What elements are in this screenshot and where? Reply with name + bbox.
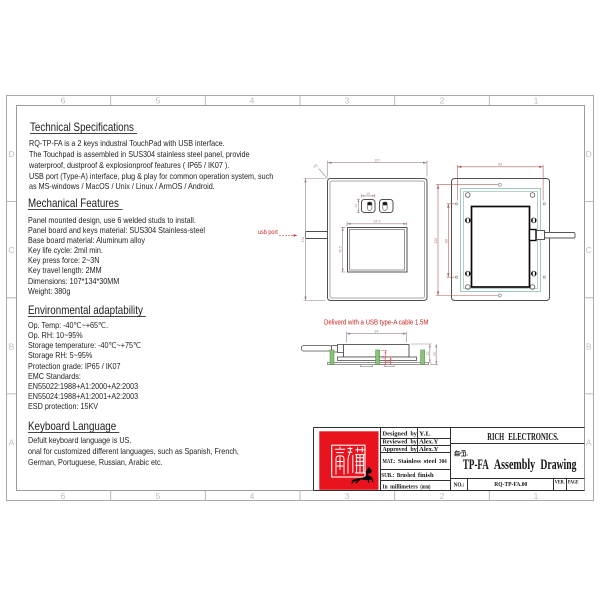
svg-text:TP-FA: TP-FA — [463, 457, 489, 473]
svg-text:Designed: Designed — [383, 432, 409, 438]
svg-text:SUB.:: SUB.: — [381, 473, 394, 479]
svg-text:RICH: RICH — [487, 432, 504, 443]
svg-text:Alex.Y: Alex.Y — [419, 447, 439, 453]
svg-text:by: by — [411, 440, 417, 446]
svg-text:millimeters: millimeters — [390, 484, 418, 490]
svg-text:64.5: 64.5 — [374, 220, 381, 224]
svg-text:(mm): (mm) — [420, 483, 430, 490]
svg-text:6: 6 — [387, 360, 391, 362]
svg-text:134: 134 — [301, 237, 305, 243]
svg-text:Y.L: Y.L — [419, 432, 431, 438]
svg-text:12: 12 — [382, 356, 386, 360]
svg-text:46.5: 46.5 — [339, 246, 343, 253]
svg-text:ELECTRONICS.: ELECTRONICS. — [508, 432, 559, 443]
svg-text:15: 15 — [366, 192, 370, 196]
svg-text:107: 107 — [374, 158, 380, 162]
svg-text:by: by — [411, 447, 417, 453]
svg-text:14: 14 — [354, 204, 358, 208]
svg-text:In: In — [383, 484, 389, 490]
svg-text:304: 304 — [439, 459, 447, 465]
svg-text:80: 80 — [444, 239, 448, 243]
svg-text:finish: finish — [418, 473, 434, 479]
svg-text:steel: steel — [424, 459, 437, 465]
svg-text:NO.:: NO.: — [454, 482, 465, 488]
svg-text:R5: R5 — [313, 163, 319, 169]
svg-text:RQ-TP-FA.00: RQ-TP-FA.00 — [494, 482, 527, 488]
svg-text:by: by — [411, 432, 417, 438]
svg-text:120: 120 — [434, 238, 438, 244]
svg-text:Reviewed: Reviewed — [383, 440, 409, 446]
svg-text:Approved: Approved — [383, 447, 408, 453]
svg-text:PAGE: PAGE — [568, 480, 579, 485]
svg-text:Deliverd with a USB type-A cab: Deliverd with a USB type-A cable 1.5M — [324, 319, 429, 326]
svg-text:VER.: VER. — [555, 480, 565, 485]
svg-text:usb port: usb port — [258, 229, 278, 236]
svg-text:30: 30 — [432, 352, 436, 356]
svg-text:MAT.:: MAT.: — [383, 459, 396, 465]
svg-text:Alex.Y: Alex.Y — [419, 440, 439, 446]
svg-text:Assembly: Assembly — [494, 457, 536, 473]
svg-text:93: 93 — [498, 163, 502, 167]
svg-text:Drawing: Drawing — [540, 457, 576, 473]
svg-text:Brushed: Brushed — [397, 473, 416, 479]
svg-text:Stainless: Stainless — [398, 459, 422, 465]
svg-text:22: 22 — [426, 352, 430, 356]
svg-text:84: 84 — [375, 329, 379, 333]
